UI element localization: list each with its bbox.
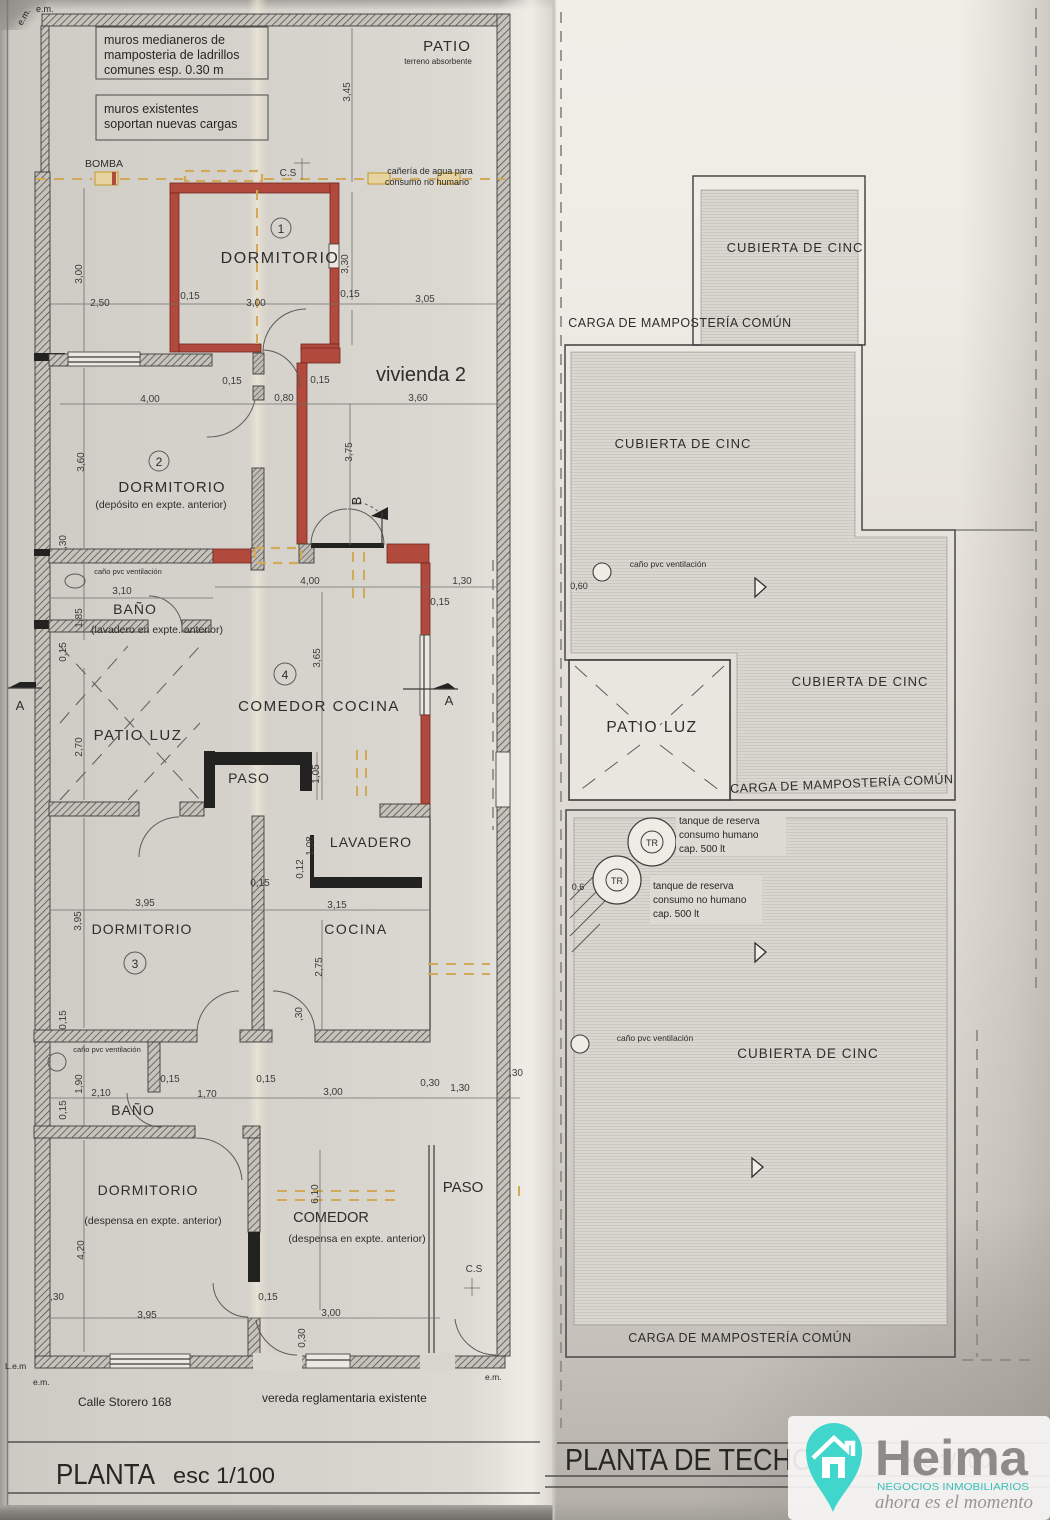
svg-text:esc 1/100: esc 1/100: [173, 1463, 275, 1488]
svg-text:(lavadero en expte. anterior): (lavadero en expte. anterior): [91, 624, 223, 636]
svg-text:CUBIERTA DE CINC: CUBIERTA DE CINC: [737, 1046, 879, 1061]
svg-text:3,75: 3,75: [344, 442, 355, 462]
svg-text:4: 4: [282, 668, 289, 682]
svg-text:1: 1: [278, 222, 285, 236]
svg-text:6,10: 6,10: [310, 1184, 321, 1204]
svg-text:0,15: 0,15: [180, 291, 200, 302]
svg-text:2: 2: [156, 455, 163, 469]
svg-text:2,75: 2,75: [314, 957, 325, 977]
svg-text:CUBIERTA DE CINC: CUBIERTA DE CINC: [727, 240, 864, 255]
svg-text:e.m.: e.m.: [36, 4, 54, 14]
svg-text:1,85: 1,85: [74, 608, 85, 628]
svg-text:(depósito en expte. anterior): (depósito en expte. anterior): [95, 499, 226, 511]
svg-text:CARGA DE MAMPOSTERÍA COMÚN: CARGA DE MAMPOSTERÍA COMÚN: [628, 1330, 851, 1345]
svg-text:e.m.: e.m.: [33, 1377, 50, 1387]
svg-text:PATIO LUZ: PATIO LUZ: [94, 727, 183, 744]
svg-text:0,15: 0,15: [310, 375, 330, 386]
svg-text:COCINA: COCINA: [324, 921, 387, 937]
svg-text:PASO: PASO: [443, 1179, 484, 1196]
svg-text:3,60: 3,60: [408, 393, 428, 404]
svg-text:0,15: 0,15: [58, 1010, 69, 1030]
svg-text:tanque de reserva: tanque de reserva: [653, 881, 734, 892]
svg-text:TR: TR: [646, 838, 658, 848]
svg-text:B: B: [349, 497, 364, 506]
svg-text:,30: ,30: [294, 1007, 305, 1021]
svg-text:muros medianeros de: muros medianeros de: [104, 33, 225, 47]
svg-text:,30: ,30: [58, 535, 69, 549]
svg-text:3,60: 3,60: [76, 452, 87, 472]
svg-text:BAÑO: BAÑO: [111, 1102, 155, 1118]
svg-text:3,15: 3,15: [327, 900, 347, 911]
svg-text:e.m.: e.m.: [15, 7, 32, 27]
svg-text:cap. 500 lt: cap. 500 lt: [679, 844, 725, 855]
svg-text:Calle Storero 168: Calle Storero 168: [78, 1395, 172, 1409]
svg-text:3,65: 3,65: [312, 648, 323, 668]
svg-text:1,30: 1,30: [452, 576, 472, 587]
svg-text:COMEDOR: COMEDOR: [293, 1210, 369, 1226]
svg-text:BOMBA: BOMBA: [85, 158, 123, 170]
svg-text:0,60: 0,60: [570, 581, 588, 591]
svg-text:LAVADERO: LAVADERO: [330, 834, 412, 850]
svg-text:3,00: 3,00: [74, 264, 85, 284]
svg-text:1,70: 1,70: [197, 1089, 217, 1100]
svg-text:1,30: 1,30: [450, 1083, 470, 1094]
svg-text:caño pvc ventilación: caño pvc ventilación: [94, 567, 162, 576]
svg-text:3: 3: [132, 957, 139, 971]
svg-text:4,20: 4,20: [76, 1240, 87, 1260]
svg-text:3,95: 3,95: [137, 1310, 157, 1321]
svg-text:0,15: 0,15: [258, 1292, 278, 1303]
svg-text:3,95: 3,95: [73, 911, 84, 931]
svg-text:terreno absorbente: terreno absorbente: [404, 57, 472, 66]
svg-text:4,00: 4,00: [140, 394, 160, 405]
svg-text:1,05: 1,05: [311, 764, 322, 784]
svg-text:caño pvc ventilación: caño pvc ventilación: [630, 559, 707, 569]
svg-text:tanque de reserva: tanque de reserva: [679, 816, 760, 827]
svg-text:TR: TR: [611, 876, 623, 886]
svg-text:0,15: 0,15: [58, 1100, 69, 1120]
svg-text:DORMITORIO: DORMITORIO: [92, 921, 193, 937]
svg-text:A: A: [16, 698, 25, 713]
svg-text:vivienda 2: vivienda 2: [376, 364, 466, 386]
svg-text:cañería de agua para: cañería de agua para: [387, 166, 473, 176]
svg-text:consumo no humano: consumo no humano: [653, 895, 747, 906]
svg-text:mamposteria de ladrillos: mamposteria de ladrillos: [104, 48, 239, 62]
svg-text:0,15: 0,15: [340, 289, 360, 300]
svg-text:CUBIERTA DE CINC: CUBIERTA DE CINC: [615, 436, 752, 451]
svg-text:0,15: 0,15: [430, 597, 450, 608]
svg-text:1,90: 1,90: [74, 1074, 85, 1094]
svg-text:2,10: 2,10: [91, 1088, 111, 1099]
svg-text:1,08: 1,08: [305, 836, 316, 856]
svg-text:COMEDOR COCINA: COMEDOR COCINA: [238, 698, 400, 715]
svg-text:3,45: 3,45: [342, 82, 353, 102]
svg-text:ahora es el momento: ahora es el momento: [875, 1492, 1033, 1513]
svg-text:CUBIERTA DE CINC: CUBIERTA DE CINC: [792, 674, 929, 689]
svg-text:comunes esp. 0.30 m: comunes esp. 0.30 m: [104, 63, 224, 77]
svg-text:CARGA DE MAMPOSTERÍA COMÚN: CARGA DE MAMPOSTERÍA COMÚN: [568, 315, 791, 330]
svg-text:consumo humano: consumo humano: [679, 830, 759, 841]
svg-text:PASO: PASO: [228, 770, 270, 786]
svg-text:caño pvc ventilación: caño pvc ventilación: [73, 1045, 141, 1054]
svg-text:0,15: 0,15: [160, 1074, 180, 1085]
svg-text:0,30: 0,30: [420, 1078, 440, 1089]
svg-text:(despensa en expte. anterior): (despensa en expte. anterior): [84, 1215, 221, 1227]
svg-text:e.m.: e.m.: [485, 1372, 502, 1382]
svg-text:0,15: 0,15: [58, 642, 69, 662]
svg-text:3,10: 3,10: [112, 586, 132, 597]
svg-text:3,05: 3,05: [415, 294, 435, 305]
svg-text:BAÑO: BAÑO: [113, 601, 157, 617]
svg-text:3,30: 3,30: [340, 254, 351, 274]
svg-text:3,00: 3,00: [321, 1308, 341, 1319]
svg-text:cap. 500 lt: cap. 500 lt: [653, 909, 699, 920]
svg-text:,30: ,30: [50, 1292, 64, 1303]
svg-text:3,00: 3,00: [246, 298, 266, 309]
svg-text:DORMITORIO: DORMITORIO: [98, 1182, 199, 1198]
svg-text:L.e.m: L.e.m: [5, 1361, 26, 1371]
svg-text:soportan nuevas cargas: soportan nuevas cargas: [104, 117, 237, 131]
svg-text:Heima: Heima: [875, 1430, 1029, 1486]
svg-text:2,70: 2,70: [74, 737, 85, 757]
svg-text:PATIO: PATIO: [423, 38, 471, 55]
svg-text:caño pvc ventilación: caño pvc ventilación: [617, 1033, 694, 1043]
svg-text:,30: ,30: [509, 1068, 523, 1079]
svg-text:muros existentes: muros existentes: [104, 102, 198, 116]
svg-text:vereda reglamentaria existent: vereda reglamentaria existente: [262, 1391, 427, 1405]
svg-text:consumo no humano: consumo no humano: [385, 177, 469, 187]
svg-text:(despensa en expte. anterior): (despensa en expte. anterior): [288, 1233, 425, 1245]
svg-text:DORMITORIO: DORMITORIO: [221, 250, 340, 267]
svg-text:0,15: 0,15: [222, 376, 242, 387]
svg-text:0,30: 0,30: [297, 1328, 308, 1348]
svg-text:3,95: 3,95: [135, 898, 155, 909]
svg-text:2,50: 2,50: [90, 298, 110, 309]
svg-text:4,00: 4,00: [300, 576, 320, 587]
svg-text:0,12: 0,12: [295, 859, 306, 879]
svg-text:3,00: 3,00: [323, 1087, 343, 1098]
svg-text:C.S: C.S: [466, 1264, 483, 1275]
svg-text:0,15: 0,15: [256, 1074, 276, 1085]
svg-text:A: A: [445, 693, 454, 708]
svg-text:0,6: 0,6: [572, 882, 585, 892]
svg-text:0,80: 0,80: [274, 393, 294, 404]
svg-text:DORMITORIO: DORMITORIO: [118, 479, 225, 496]
svg-text:0,15: 0,15: [250, 878, 270, 889]
svg-text:PLANTA: PLANTA: [56, 1459, 156, 1491]
svg-text:PATIO LUZ: PATIO LUZ: [606, 719, 697, 736]
svg-text:C.S: C.S: [280, 168, 297, 179]
